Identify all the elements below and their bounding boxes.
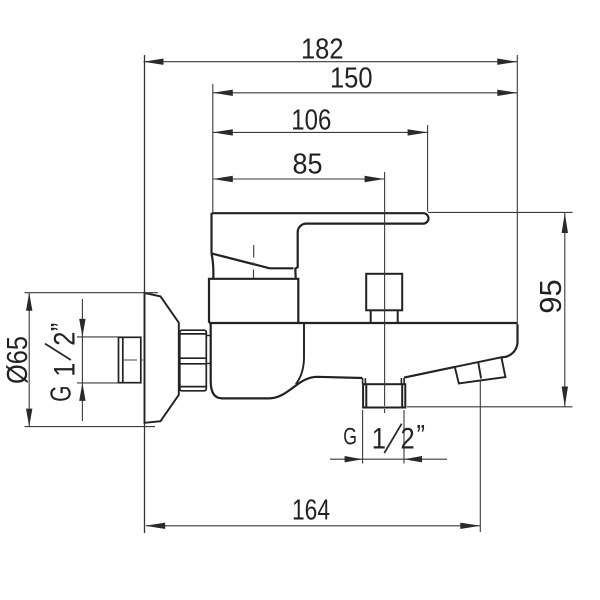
svg-text:2: 2: [401, 422, 415, 455]
svg-text:G: G: [343, 422, 357, 450]
svg-text:Ø65: Ø65: [2, 336, 34, 384]
svg-text:”: ”: [45, 323, 78, 332]
svg-text:1: 1: [48, 363, 81, 377]
svg-text:”: ”: [417, 419, 426, 452]
svg-text:1: 1: [372, 422, 386, 455]
svg-text:150: 150: [330, 63, 373, 95]
svg-text:85: 85: [293, 149, 323, 181]
svg-text:164: 164: [292, 495, 330, 527]
svg-text:95: 95: [533, 279, 568, 313]
svg-text:106: 106: [291, 105, 331, 137]
svg-text:2: 2: [48, 332, 81, 346]
svg-text:G: G: [45, 386, 77, 402]
svg-text:182: 182: [301, 34, 344, 66]
